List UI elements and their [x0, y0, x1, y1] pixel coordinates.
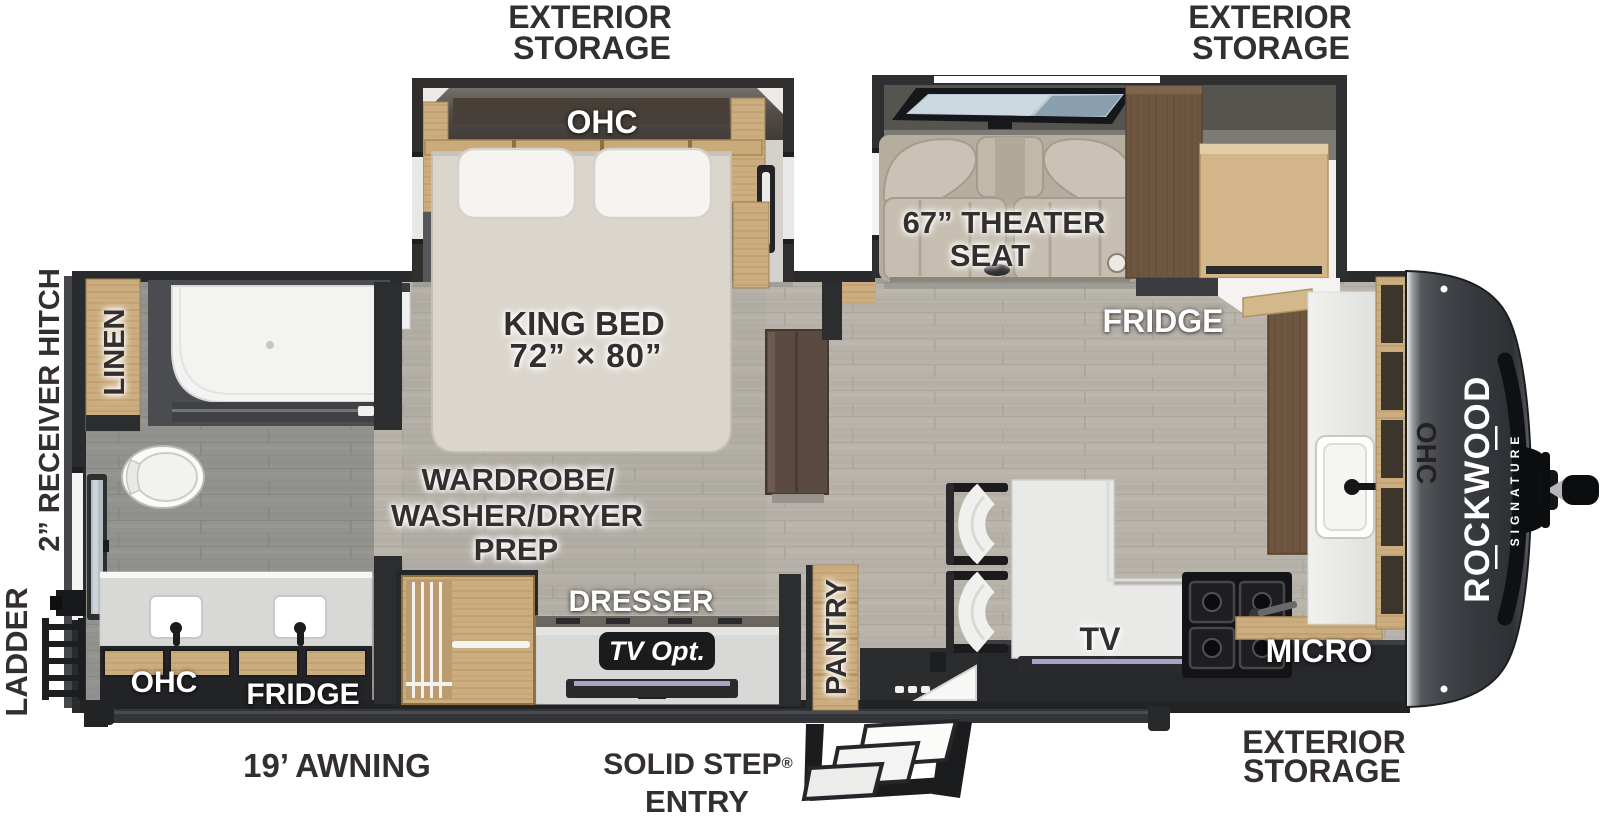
- svg-text:72” × 80”: 72” × 80”: [509, 337, 662, 374]
- svg-text:SOLID STEP®: SOLID STEP®: [603, 748, 792, 781]
- svg-text:ROCKWOOD: ROCKWOOD: [1458, 375, 1497, 603]
- svg-text:LADDER: LADDER: [0, 587, 34, 716]
- svg-text:STORAGE: STORAGE: [1243, 753, 1401, 789]
- svg-text:PANTRY: PANTRY: [821, 579, 853, 695]
- svg-text:OHC: OHC: [131, 666, 198, 699]
- svg-text:19’ AWNING: 19’ AWNING: [243, 747, 431, 784]
- svg-text:TV Opt.: TV Opt.: [609, 636, 705, 666]
- svg-text:ENTRY: ENTRY: [645, 784, 749, 817]
- svg-text:SEAT: SEAT: [950, 238, 1030, 273]
- svg-text:TV: TV: [1080, 621, 1122, 657]
- svg-text:FRIDGE: FRIDGE: [1103, 303, 1224, 339]
- svg-text:OHC: OHC: [566, 104, 637, 140]
- svg-text:DRESSER: DRESSER: [568, 585, 713, 618]
- svg-text:SIGNATURE: SIGNATURE: [1508, 432, 1522, 547]
- svg-text:STORAGE: STORAGE: [513, 30, 671, 66]
- svg-text:WARDROBE/: WARDROBE/: [422, 462, 615, 497]
- svg-text:2” RECEIVER HITCH: 2” RECEIVER HITCH: [34, 268, 66, 552]
- svg-text:LINEN: LINEN: [99, 309, 131, 396]
- svg-text:WASHER/DRYER: WASHER/DRYER: [391, 498, 643, 533]
- svg-text:67” THEATER: 67” THEATER: [903, 205, 1106, 240]
- svg-text:STORAGE: STORAGE: [1192, 30, 1350, 66]
- svg-text:PREP: PREP: [474, 532, 558, 567]
- svg-text:OHC: OHC: [1411, 422, 1442, 484]
- svg-text:FRIDGE: FRIDGE: [246, 678, 359, 711]
- svg-text:MICRO: MICRO: [1266, 633, 1373, 669]
